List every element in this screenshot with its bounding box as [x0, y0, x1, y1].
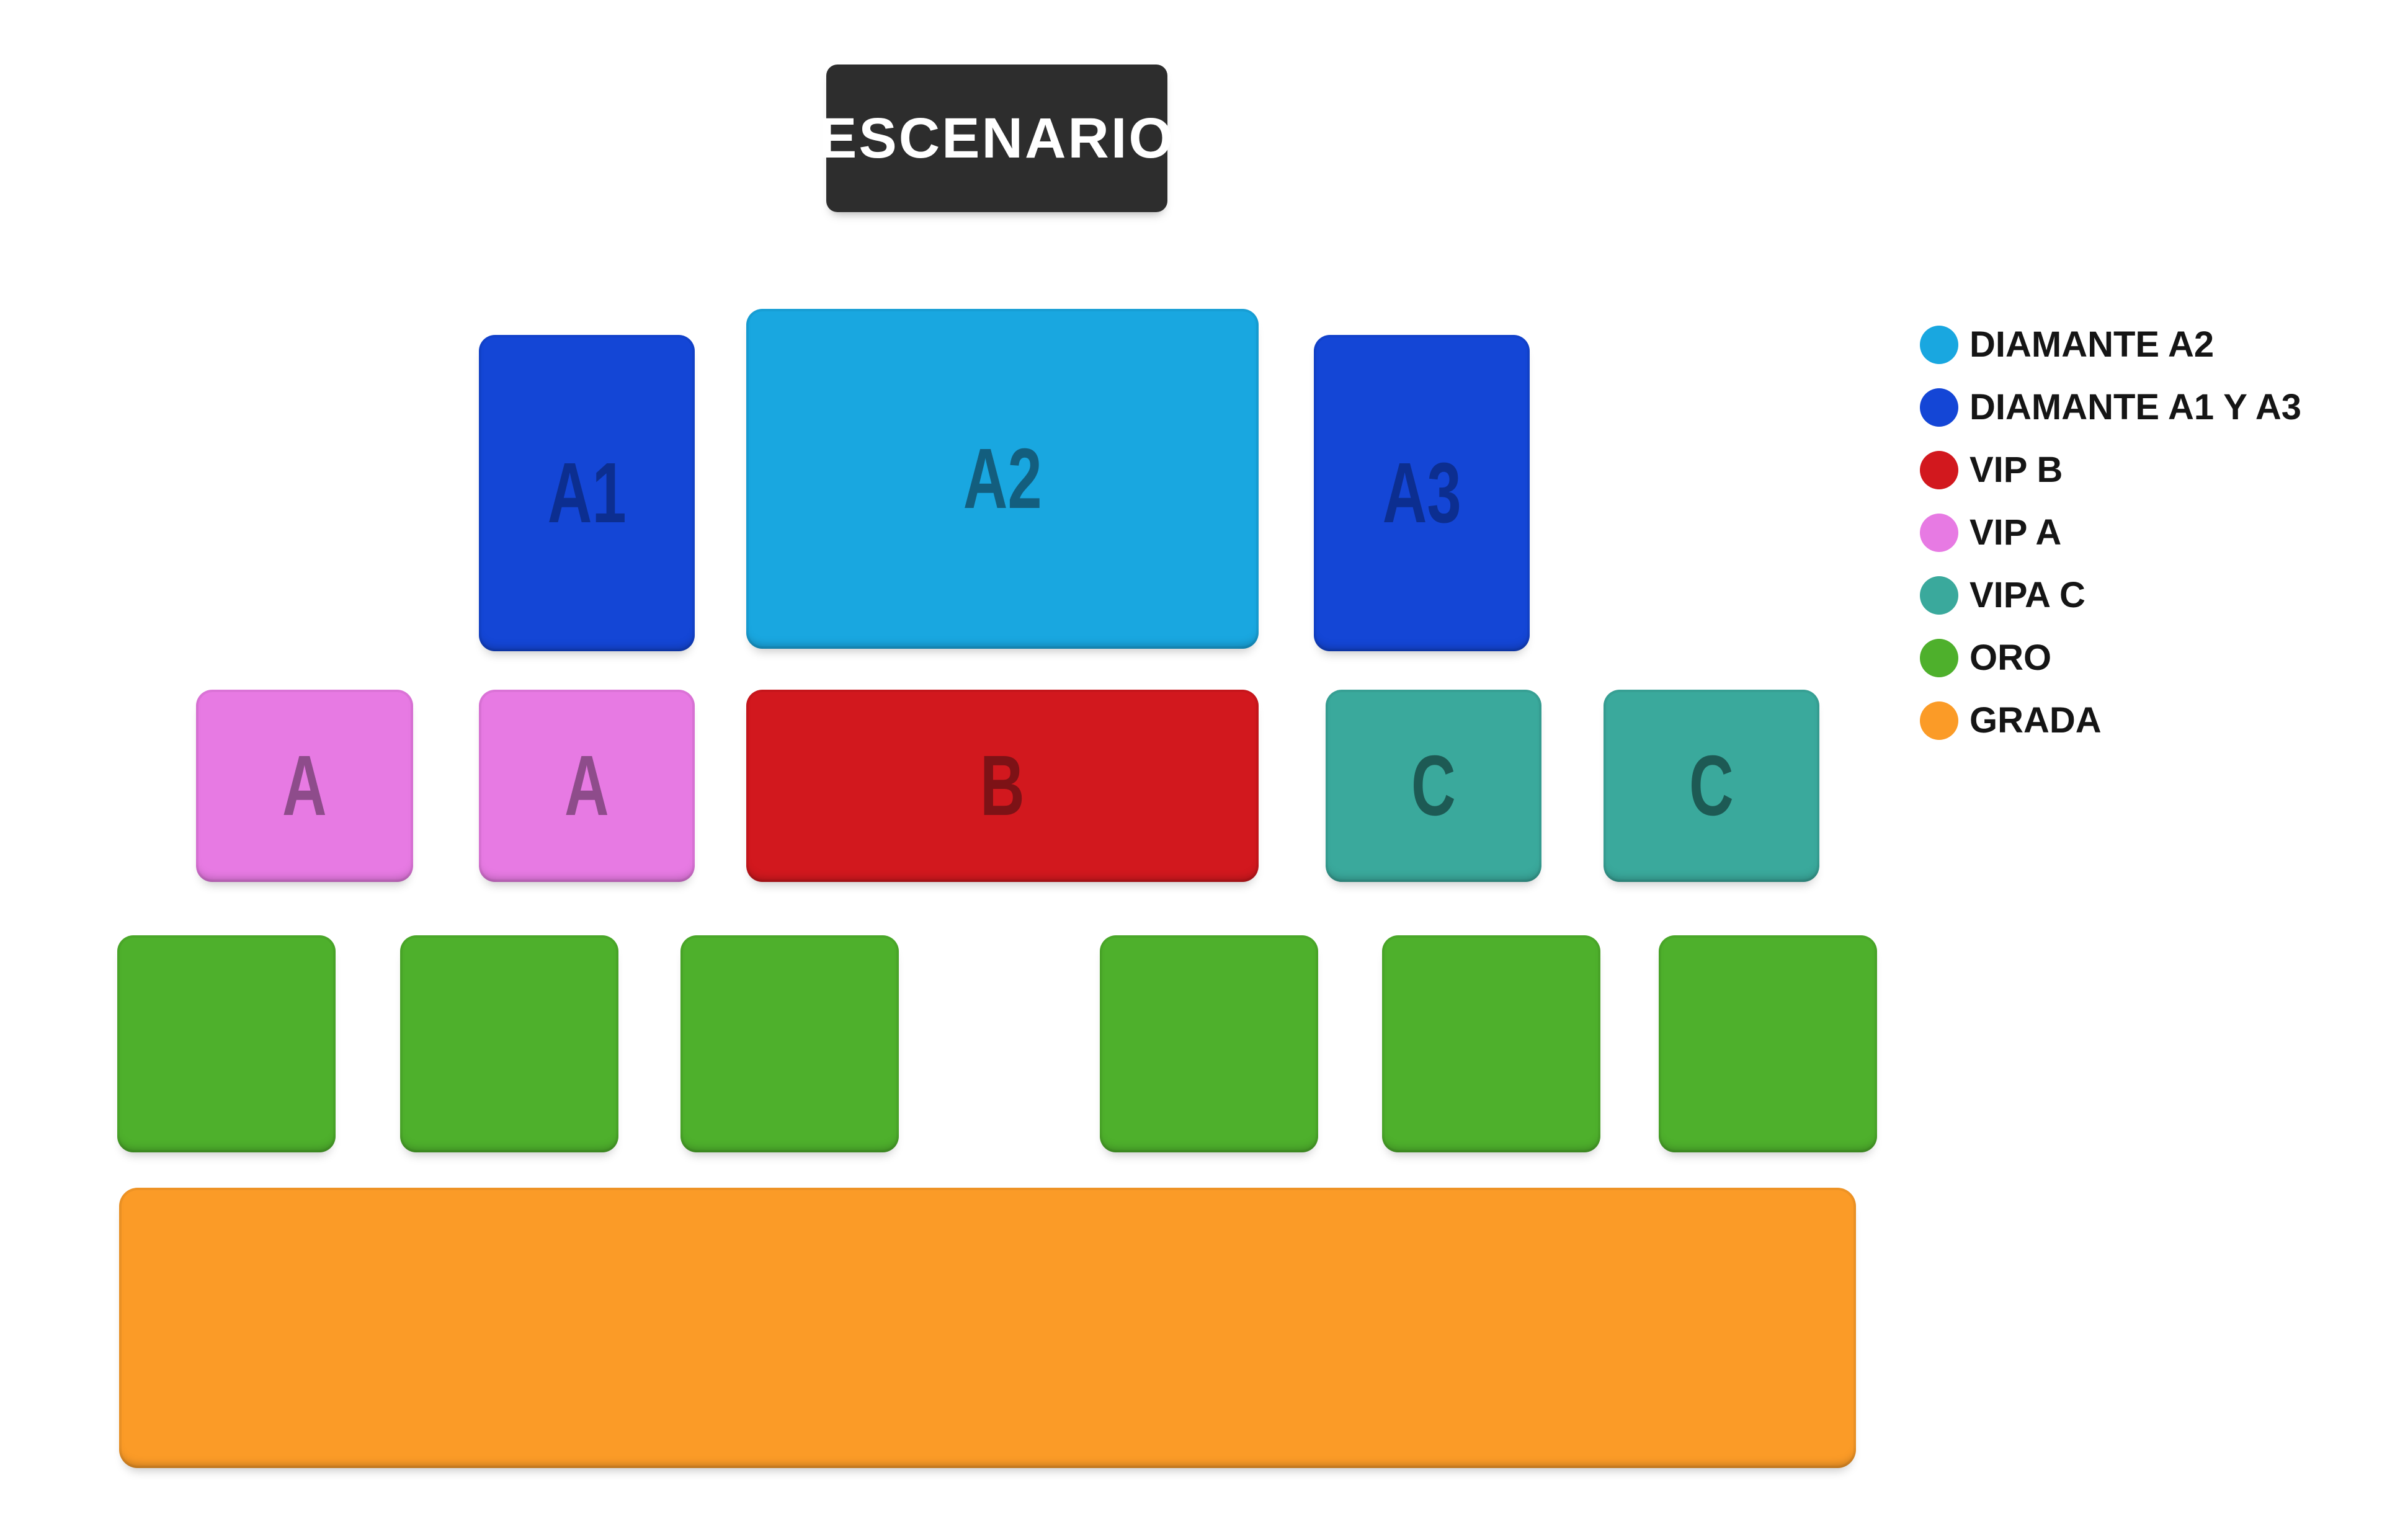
legend-dot-vipa-c: [1920, 576, 1958, 615]
section-vipa-c-right[interactable]: C: [1604, 690, 1819, 882]
legend-item-vip-a: VIP A: [1920, 501, 2301, 564]
section-oro-1[interactable]: [117, 935, 336, 1152]
legend-label-vip-b: VIP B: [1969, 449, 2063, 491]
legend-dot-vip-a: [1920, 514, 1958, 552]
section-vipa-c-right-label: C: [1689, 737, 1734, 835]
section-oro-6[interactable]: [1659, 935, 1877, 1152]
legend: DIAMANTE A2 DIAMANTE A1 Y A3 VIP B VIP A…: [1920, 313, 2301, 752]
section-vip-a-left[interactable]: A: [196, 690, 413, 882]
legend-dot-diamante-a1-y-a3: [1920, 388, 1958, 427]
seating-map-canvas: ESCENARIO A1 A2 A3 A A B C C DIAMANTE A2: [0, 0, 2382, 1540]
legend-item-diamante-a2: DIAMANTE A2: [1920, 313, 2301, 376]
section-a1-label: A1: [547, 444, 626, 543]
section-oro-3[interactable]: [680, 935, 899, 1152]
stage-block: ESCENARIO: [826, 65, 1167, 212]
legend-dot-vip-b: [1920, 451, 1958, 489]
section-oro-5[interactable]: [1382, 935, 1600, 1152]
legend-item-diamante-a1-y-a3: DIAMANTE A1 Y A3: [1920, 376, 2301, 438]
legend-item-grada: GRADA: [1920, 689, 2301, 752]
section-a2-label: A2: [963, 430, 1042, 528]
section-vipa-c-left-label: C: [1411, 737, 1456, 835]
legend-dot-oro: [1920, 639, 1958, 677]
section-grada[interactable]: [119, 1188, 1856, 1468]
legend-label-vip-a: VIP A: [1969, 512, 2061, 553]
section-a3-label: A3: [1382, 444, 1461, 543]
legend-label-oro: ORO: [1969, 637, 2051, 679]
section-vip-a-right-label: A: [564, 737, 609, 835]
legend-item-vipa-c: VIPA C: [1920, 564, 2301, 626]
legend-label-diamante-a2: DIAMANTE A2: [1969, 324, 2214, 365]
section-vip-a-left-label: A: [282, 737, 327, 835]
legend-dot-diamante-a2: [1920, 326, 1958, 364]
section-oro-4[interactable]: [1100, 935, 1318, 1152]
legend-label-vipa-c: VIPA C: [1969, 574, 2085, 616]
section-diamante-a1[interactable]: A1: [479, 335, 695, 651]
section-vip-a-right[interactable]: A: [479, 690, 695, 882]
legend-item-vip-b: VIP B: [1920, 438, 2301, 501]
legend-label-grada: GRADA: [1969, 700, 2102, 741]
section-vip-b-label: B: [980, 737, 1025, 835]
section-diamante-a3[interactable]: A3: [1314, 335, 1530, 651]
legend-item-oro: ORO: [1920, 626, 2301, 689]
legend-dot-grada: [1920, 701, 1958, 740]
section-oro-2[interactable]: [400, 935, 618, 1152]
stage-label: ESCENARIO: [819, 106, 1175, 171]
section-diamante-a2[interactable]: A2: [746, 309, 1259, 649]
section-vip-b[interactable]: B: [746, 690, 1259, 882]
section-vipa-c-left[interactable]: C: [1326, 690, 1541, 882]
legend-label-diamante-a1-y-a3: DIAMANTE A1 Y A3: [1969, 386, 2301, 428]
